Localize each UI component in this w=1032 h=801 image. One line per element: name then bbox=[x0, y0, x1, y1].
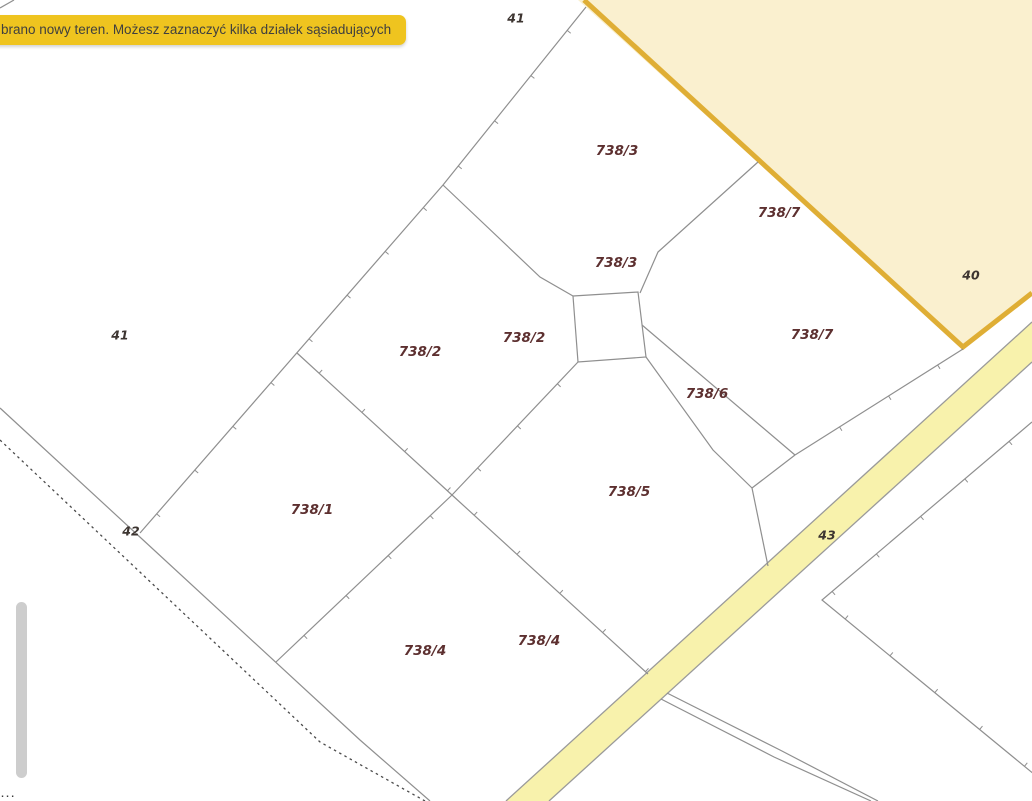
boundary-tick bbox=[876, 554, 879, 557]
path-double-1 bbox=[667, 693, 878, 801]
parcel-label: 738/4 bbox=[404, 643, 447, 659]
boundary-tick bbox=[423, 208, 426, 211]
boundary-738-6-se bbox=[646, 357, 752, 488]
selected-region-738-40[interactable] bbox=[578, 0, 1032, 347]
boundary-tick bbox=[965, 479, 968, 482]
boundary-tick bbox=[309, 339, 312, 342]
boundary-tick bbox=[890, 652, 893, 655]
road-border-1 bbox=[506, 322, 1032, 801]
boundary-tick-v bbox=[822, 422, 1032, 775]
boundary-tick bbox=[430, 516, 433, 519]
clipped-edge-text: ··· bbox=[1, 792, 16, 801]
parcel-label: 738/3 bbox=[596, 143, 639, 159]
boundary-tick bbox=[557, 384, 560, 387]
boundary-tick bbox=[447, 487, 450, 490]
boundary-tick bbox=[478, 468, 481, 471]
boundary-tick bbox=[346, 595, 349, 598]
area-number-label: 42 bbox=[121, 524, 139, 539]
parcel-square bbox=[573, 292, 646, 362]
boundary-tick bbox=[458, 166, 462, 169]
boundary-stem bbox=[752, 488, 768, 566]
boundary-tick bbox=[517, 426, 520, 429]
boundary-tick bbox=[157, 514, 160, 517]
boundary-tick bbox=[319, 370, 322, 373]
boundary-tick bbox=[921, 516, 924, 519]
boundary-tick bbox=[233, 426, 236, 429]
path-double-2 bbox=[661, 699, 871, 801]
boundary-tick bbox=[531, 76, 535, 79]
parcel-label: 738/7 bbox=[791, 327, 834, 343]
parcel-label: 738/1 bbox=[291, 502, 334, 518]
parcel-label: 738/4 bbox=[518, 633, 561, 649]
boundary-tick bbox=[405, 448, 408, 451]
boundary-tick bbox=[347, 295, 350, 298]
parcel-label: 738/6 bbox=[686, 386, 729, 402]
edge-fragment-line bbox=[0, 0, 14, 8]
parcel-label: 738/2 bbox=[503, 330, 546, 346]
boundary-738-6-cap bbox=[752, 455, 795, 488]
boundary-tick bbox=[935, 689, 938, 692]
boundary-tick bbox=[845, 616, 848, 619]
parcel-label: 738/5 bbox=[608, 484, 651, 500]
notification-banner: brano nowy teren. Możesz zaznaczyć kilka… bbox=[0, 15, 406, 45]
boundary-crossing-a bbox=[297, 353, 648, 674]
boundary-tick bbox=[560, 590, 563, 593]
area-number-label: 41 bbox=[110, 328, 128, 343]
boundary-tick bbox=[271, 383, 274, 386]
notification-text: brano nowy teren. Możesz zaznaczyć kilka… bbox=[1, 22, 391, 37]
boundary-tick bbox=[567, 30, 571, 33]
boundary-tick bbox=[304, 635, 307, 638]
boundary-long-diagonal bbox=[140, 7, 586, 533]
boundary-tick bbox=[195, 470, 198, 473]
boundary-tick bbox=[517, 551, 520, 554]
parcel-label: 738/3 bbox=[595, 255, 638, 271]
boundary-tick bbox=[1024, 763, 1027, 766]
boundary-42-solid bbox=[0, 408, 430, 801]
boundary-738-3-738-7 bbox=[640, 162, 758, 293]
boundary-tick bbox=[385, 251, 388, 254]
boundary-tick bbox=[1009, 441, 1012, 444]
road-border-2 bbox=[549, 362, 1032, 801]
area-number-label: 40 bbox=[961, 268, 980, 283]
area-number-label: 43 bbox=[817, 528, 835, 543]
parcel-label: 738/7 bbox=[758, 205, 801, 221]
boundary-tick bbox=[362, 409, 365, 412]
boundary-branch-to-square bbox=[443, 185, 573, 296]
boundary-42-dashed bbox=[0, 440, 425, 801]
boundary-tick bbox=[840, 427, 842, 431]
boundary-tick bbox=[832, 591, 835, 594]
boundary-tick bbox=[938, 365, 940, 369]
boundary-tick bbox=[980, 726, 983, 729]
area-number-label: 41 bbox=[506, 11, 524, 26]
scrollbar-thumb[interactable] bbox=[16, 602, 27, 778]
boundary-tick bbox=[474, 512, 477, 515]
map-viewport: 738/3738/3738/7738/7738/2738/2738/1738/5… bbox=[0, 0, 1032, 801]
boundary-tick bbox=[889, 396, 891, 400]
parcel-label: 738/2 bbox=[399, 344, 442, 360]
boundary-tick bbox=[388, 556, 391, 559]
boundary-tick bbox=[495, 121, 499, 124]
map-canvas[interactable]: 738/3738/3738/7738/7738/2738/2738/1738/5… bbox=[0, 0, 1032, 801]
boundary-tick bbox=[603, 629, 606, 632]
